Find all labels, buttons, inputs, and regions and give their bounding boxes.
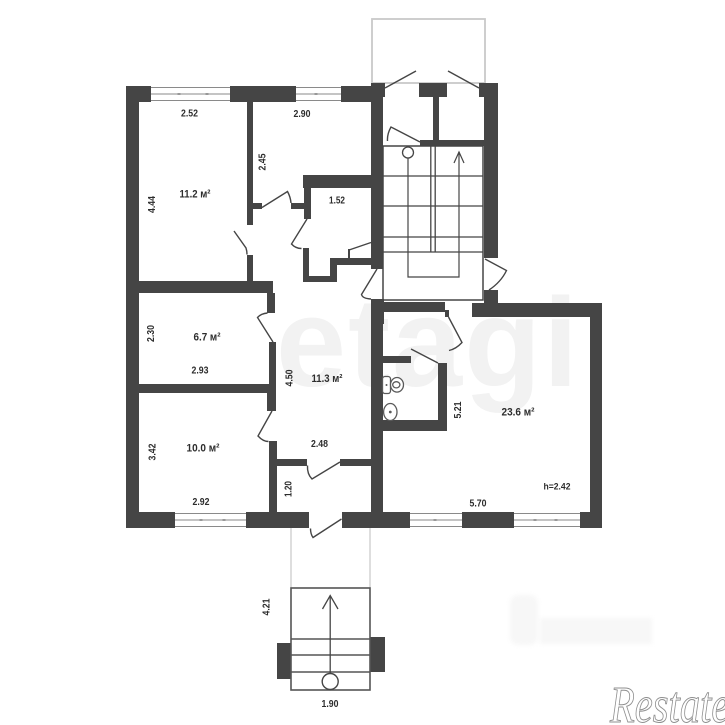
svg-text:5.21: 5.21 [453, 401, 464, 418]
svg-text:4.50: 4.50 [285, 369, 296, 386]
svg-text:2.90: 2.90 [294, 109, 311, 120]
svg-text:2.48: 2.48 [311, 439, 328, 450]
svg-text:4.21: 4.21 [262, 598, 273, 615]
svg-text:11.3 м²: 11.3 м² [312, 373, 343, 385]
svg-text:2.93: 2.93 [192, 366, 209, 377]
svg-text:1.52: 1.52 [329, 196, 345, 207]
svg-text:23.6 м²: 23.6 м² [502, 407, 535, 419]
svg-text:4.44: 4.44 [147, 196, 158, 213]
svg-text:11.2 м²: 11.2 м² [180, 189, 211, 201]
svg-text:10.0 м²: 10.0 м² [187, 443, 220, 455]
svg-text:2.52: 2.52 [181, 109, 198, 120]
svg-text:2.45: 2.45 [258, 153, 269, 170]
svg-text:1.20: 1.20 [284, 481, 295, 497]
svg-text:3.42: 3.42 [148, 443, 159, 460]
svg-text:5.70: 5.70 [470, 499, 487, 510]
svg-text:h=2.42: h=2.42 [544, 482, 571, 493]
svg-text:2.30: 2.30 [146, 325, 157, 342]
svg-text:6.7 м²: 6.7 м² [194, 332, 221, 344]
svg-text:1.90: 1.90 [322, 699, 339, 710]
svg-text:2.92: 2.92 [193, 497, 210, 508]
